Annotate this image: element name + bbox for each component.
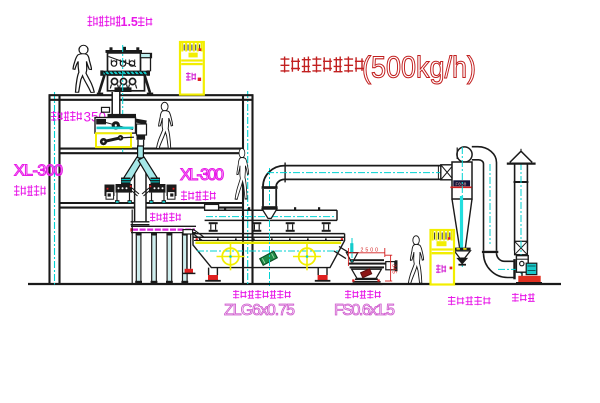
svg-text:345: 345 xyxy=(391,264,397,274)
svg-text:ZLG6x0.75: ZLG6x0.75 xyxy=(224,302,295,319)
svg-text:(500kg/h): (500kg/h) xyxy=(362,50,476,85)
svg-text:1.5: 1.5 xyxy=(121,15,138,29)
svg-text:XL-300: XL-300 xyxy=(14,163,63,180)
svg-text:XL-300: XL-300 xyxy=(180,166,224,184)
svg-text:FS0.6x1.5: FS0.6x1.5 xyxy=(334,302,395,319)
svg-text:2500: 2500 xyxy=(361,248,379,254)
